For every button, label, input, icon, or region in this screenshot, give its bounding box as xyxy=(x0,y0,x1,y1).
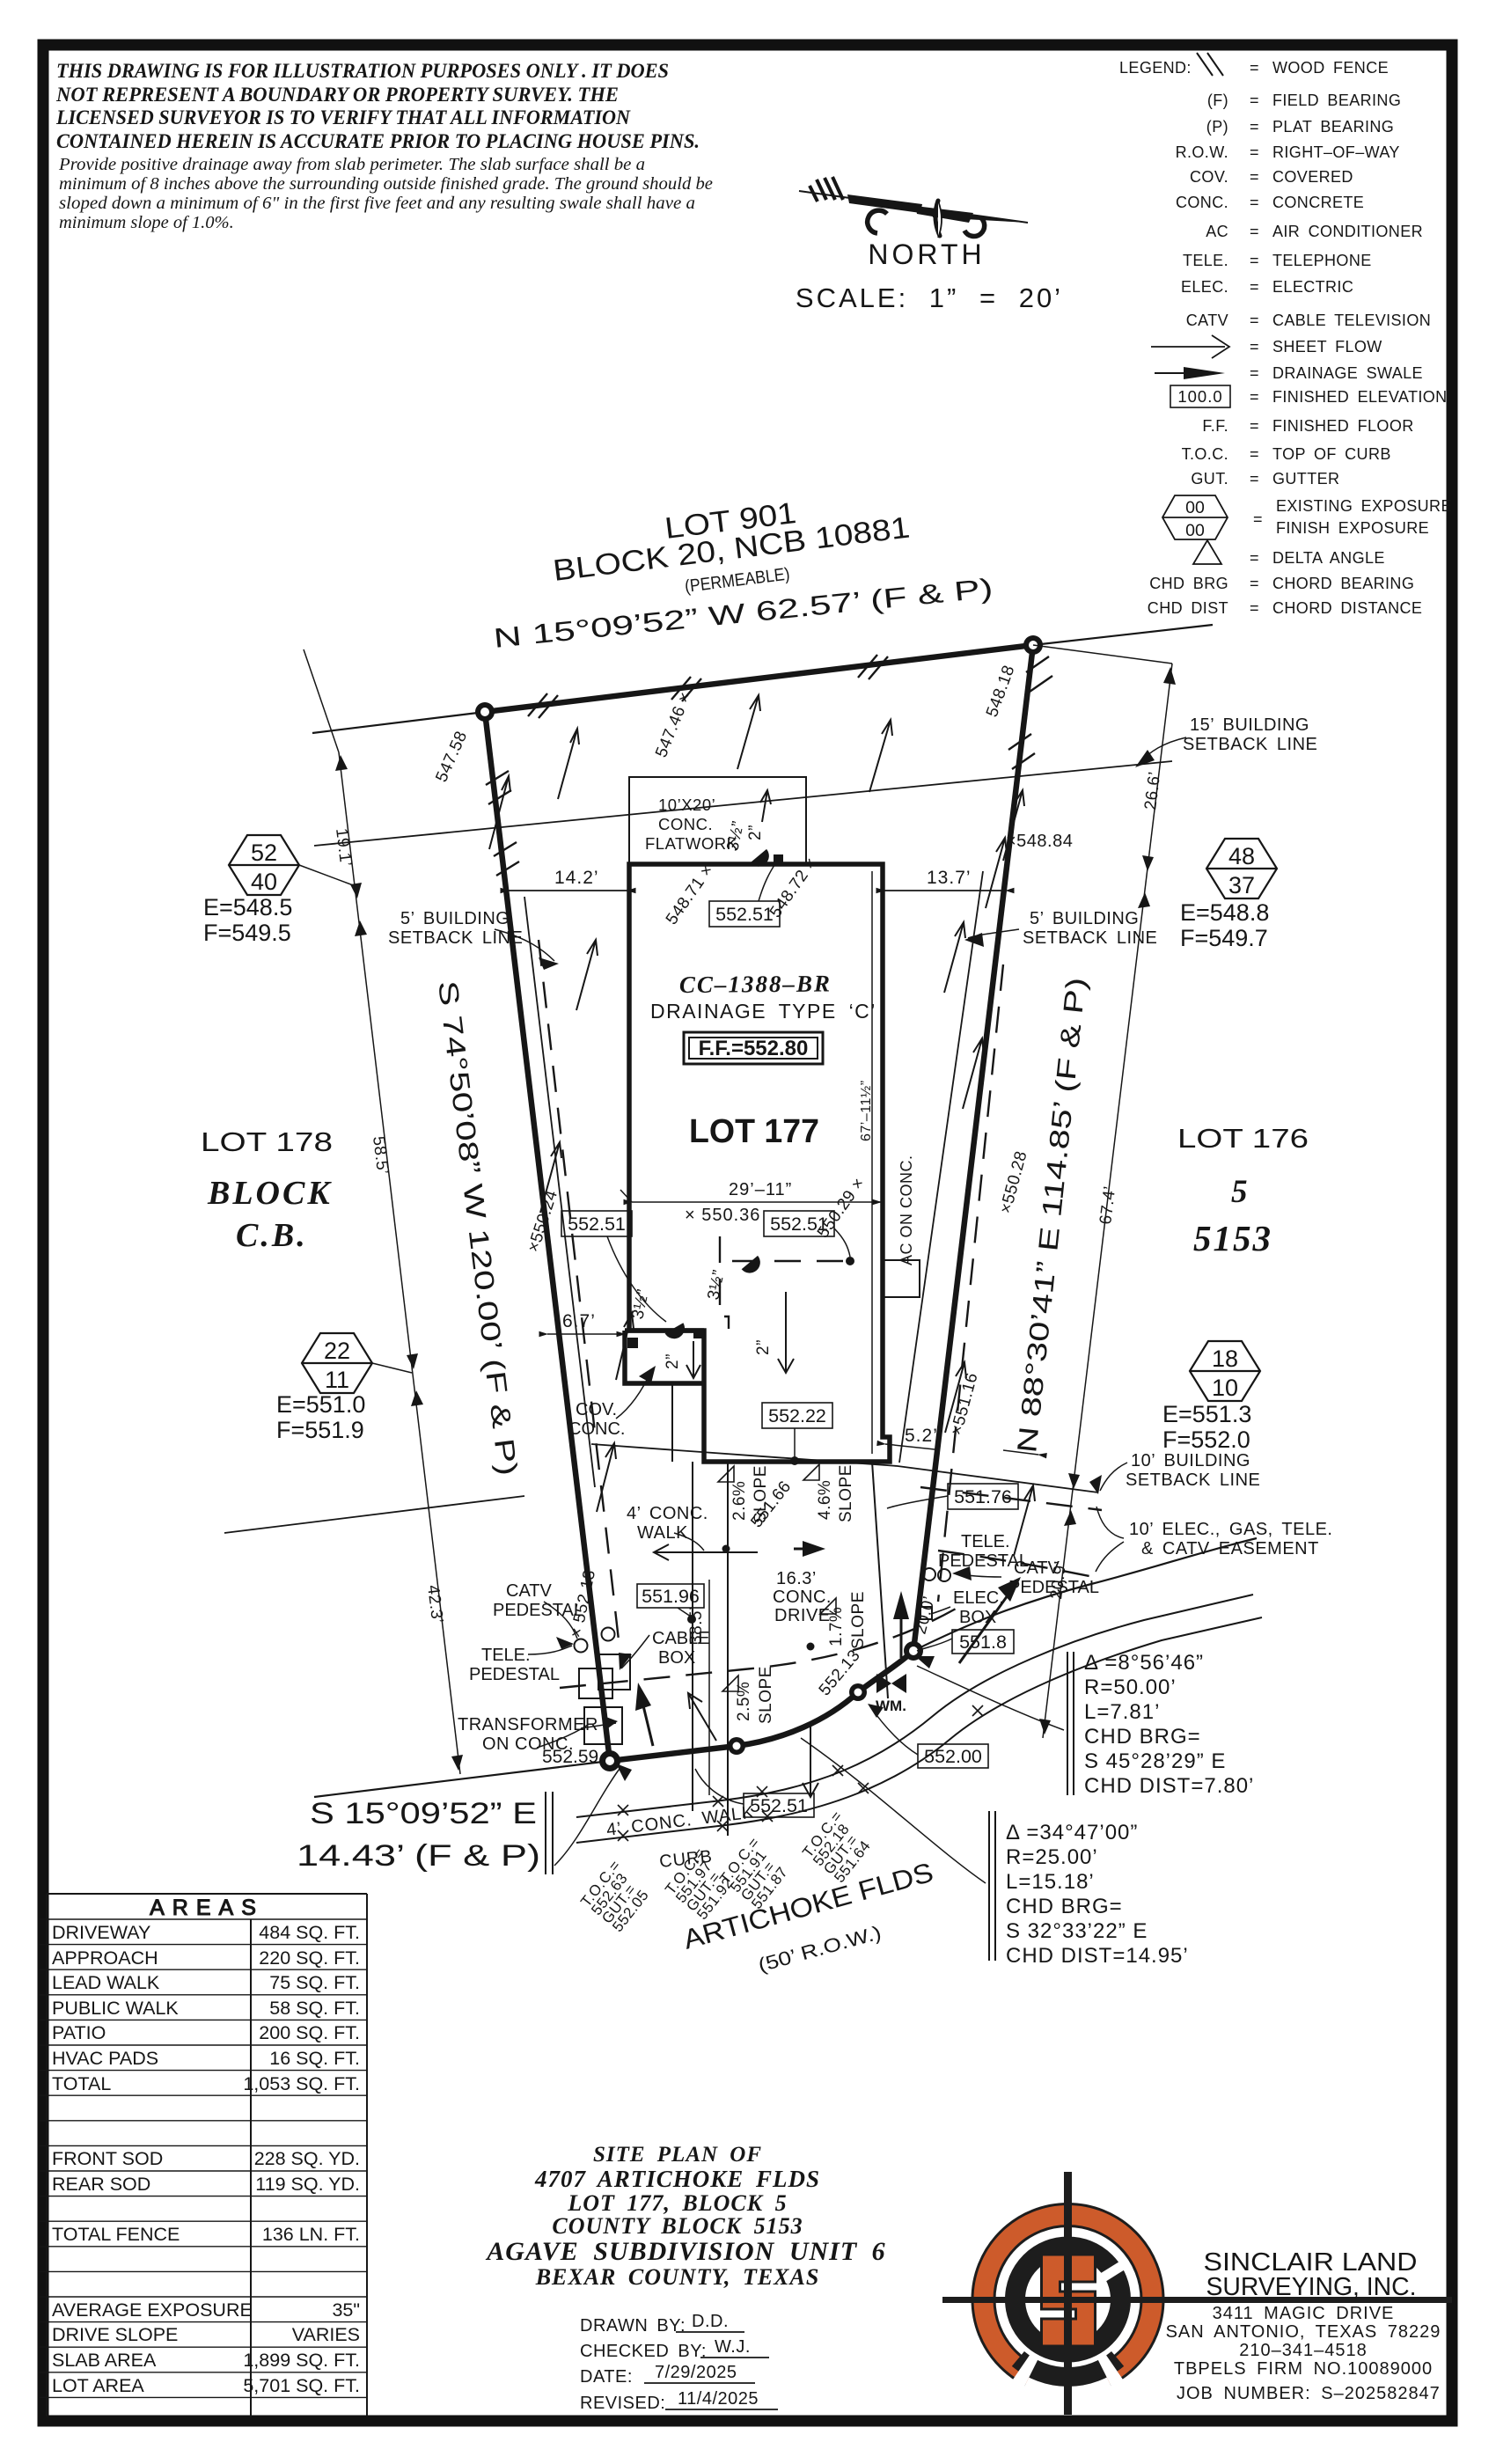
svg-text:BOX: BOX xyxy=(658,1648,695,1668)
svg-text:4707 ARTICHOKE FLDS: 4707 ARTICHOKE FLDS xyxy=(534,2166,820,2192)
svg-text:NOT REPRESENT A BOUNDARY OR PR: NOT REPRESENT A BOUNDARY OR PROPERTY SUR… xyxy=(55,84,619,106)
svg-text:00: 00 xyxy=(1185,498,1205,517)
svg-text:TBPELS FIRM NO.10089000: TBPELS FIRM NO.10089000 xyxy=(1174,2359,1433,2379)
svg-text:SETBACK LINE: SETBACK LINE xyxy=(1023,928,1157,948)
svg-text:2.5%: 2.5% xyxy=(735,1682,753,1721)
svg-text:×548.84: ×548.84 xyxy=(1006,832,1073,851)
svg-text:7/29/2025: 7/29/2025 xyxy=(655,2363,737,2382)
svg-text:SHEET FLOW: SHEET FLOW xyxy=(1272,338,1382,356)
svg-text:SLOPE: SLOPE xyxy=(849,1591,868,1649)
svg-text:=: = xyxy=(1250,338,1259,356)
svg-text:LOT 177: LOT 177 xyxy=(689,1113,819,1150)
svg-text:BLOCK: BLOCK xyxy=(207,1175,333,1212)
svg-text:210–341–4518: 210–341–4518 xyxy=(1239,2341,1367,2360)
svg-text:=: = xyxy=(1250,118,1259,136)
svg-text:FINISHED ELEVATION: FINISHED ELEVATION xyxy=(1272,388,1448,406)
svg-text:38.5’: 38.5’ xyxy=(687,1606,706,1645)
svg-text:CHD BRG=: CHD BRG= xyxy=(1006,1895,1123,1918)
svg-text:× 550.36: × 550.36 xyxy=(685,1206,760,1225)
svg-text:DRIVEWAY: DRIVEWAY xyxy=(52,1922,150,1943)
svg-text:552.51: 552.51 xyxy=(568,1214,626,1235)
svg-text:10: 10 xyxy=(1212,1375,1238,1401)
svg-text:L=7.81’: L=7.81’ xyxy=(1084,1700,1160,1724)
svg-text:29’–11”: 29’–11” xyxy=(729,1180,792,1199)
svg-text:BEXAR COUNTY, TEXAS: BEXAR COUNTY, TEXAS xyxy=(535,2264,820,2290)
svg-text:22: 22 xyxy=(324,1338,350,1364)
svg-text:1,899 SQ. FT.: 1,899 SQ. FT. xyxy=(243,2350,360,2371)
svg-text:F=552.0: F=552.0 xyxy=(1162,1426,1250,1453)
svg-text:EXISTING EXPOSURE: EXISTING EXPOSURE xyxy=(1276,497,1452,515)
svg-text:=: = xyxy=(1250,143,1259,161)
svg-text:228 SQ. YD.: 228 SQ. YD. xyxy=(254,2148,360,2169)
svg-text:C.B.: C.B. xyxy=(236,1217,308,1254)
svg-text:FINISHED FLOOR: FINISHED FLOOR xyxy=(1272,417,1414,435)
svg-text:CHD DIST: CHD DIST xyxy=(1148,599,1228,617)
svg-text:CATV: CATV xyxy=(1186,312,1228,329)
svg-text:(F): (F) xyxy=(1207,92,1228,109)
svg-text:E=551.3: E=551.3 xyxy=(1162,1401,1251,1427)
svg-text:75 SQ. FT.: 75 SQ. FT. xyxy=(269,1972,360,1993)
svg-text:16 SQ. FT.: 16 SQ. FT. xyxy=(269,2048,360,2069)
svg-text:3411 MAGIC DRIVE: 3411 MAGIC DRIVE xyxy=(1213,2304,1395,2323)
svg-text:4.6%: 4.6% xyxy=(816,1480,834,1520)
svg-text:CHD DIST=7.80’: CHD DIST=7.80’ xyxy=(1084,1774,1254,1798)
svg-text:DRAINAGE TYPE ‘C’: DRAINAGE TYPE ‘C’ xyxy=(650,1000,876,1023)
svg-text:THIS DRAWING IS FOR ILLUSTRATI: THIS DRAWING IS FOR ILLUSTRATION PURPOSE… xyxy=(56,60,669,83)
svg-text:CONC.: CONC. xyxy=(1176,194,1228,211)
svg-text:58 SQ. FT.: 58 SQ. FT. xyxy=(269,1998,360,2019)
svg-text:COV.: COV. xyxy=(1190,168,1228,186)
svg-text:LOT 177, BLOCK 5: LOT 177, BLOCK 5 xyxy=(567,2190,787,2216)
svg-text:APPROACH: APPROACH xyxy=(52,1947,158,1969)
svg-text:484 SQ. FT.: 484 SQ. FT. xyxy=(259,1922,360,1943)
svg-text:5153: 5153 xyxy=(1193,1218,1272,1258)
svg-text:DRAINAGE SWALE: DRAINAGE SWALE xyxy=(1272,364,1423,382)
svg-text:CONC.: CONC. xyxy=(658,815,713,833)
svg-text:RIGHT–OF–WAY: RIGHT–OF–WAY xyxy=(1272,143,1400,161)
svg-text:=: = xyxy=(1250,223,1259,240)
svg-text:REAR SOD: REAR SOD xyxy=(52,2174,150,2195)
svg-text:LEGEND:: LEGEND: xyxy=(1119,59,1192,77)
svg-text:JOB NUMBER: S–202582847: JOB NUMBER: S–202582847 xyxy=(1177,2384,1441,2403)
svg-text:GUTTER: GUTTER xyxy=(1272,470,1339,488)
svg-text:CATV: CATV xyxy=(506,1581,553,1601)
svg-text:DATE:: DATE: xyxy=(580,2367,633,2387)
svg-text:ELECTRIC: ELECTRIC xyxy=(1272,278,1353,296)
svg-text:220 SQ. FT.: 220 SQ. FT. xyxy=(259,1947,360,1969)
svg-text:ELEC.: ELEC. xyxy=(953,1588,1004,1608)
svg-text:552.22: 552.22 xyxy=(768,1405,826,1426)
svg-text:PLAT BEARING: PLAT BEARING xyxy=(1272,118,1394,136)
svg-text:5.2’: 5.2’ xyxy=(905,1426,938,1446)
svg-text:551.76: 551.76 xyxy=(954,1486,1012,1507)
svg-text:2.6%: 2.6% xyxy=(730,1481,749,1521)
svg-text:sloped down a minimum of 6" in: sloped down a minimum of 6" in the first… xyxy=(59,194,695,213)
svg-text:15’ BUILDING: 15’ BUILDING xyxy=(1190,715,1309,735)
svg-text:SLOPE: SLOPE xyxy=(757,1666,775,1724)
svg-text:LEAD WALK: LEAD WALK xyxy=(52,1972,160,1993)
svg-text:BOX: BOX xyxy=(959,1608,996,1627)
svg-text:FIELD BEARING: FIELD BEARING xyxy=(1272,92,1401,109)
svg-text:552.00: 552.00 xyxy=(924,1746,982,1767)
svg-text:11/4/2025: 11/4/2025 xyxy=(678,2389,759,2409)
svg-text:VARIES: VARIES xyxy=(292,2324,360,2345)
svg-text:=: = xyxy=(1250,194,1259,211)
svg-text:Provide positive drainage away: Provide positive drainage away from slab… xyxy=(58,155,645,174)
svg-text:AVERAGE EXPOSURE: AVERAGE EXPOSURE xyxy=(52,2299,253,2321)
svg-text:F=551.9: F=551.9 xyxy=(276,1417,364,1443)
svg-text:S 45°28’29” E: S 45°28’29” E xyxy=(1084,1749,1226,1773)
svg-text:1,053 SQ. FT.: 1,053 SQ. FT. xyxy=(243,2073,360,2094)
svg-text:WALK: WALK xyxy=(637,1523,688,1543)
svg-text:=: = xyxy=(1250,312,1259,329)
svg-text:35": 35" xyxy=(332,2299,360,2321)
svg-text:FINISH EXPOSURE: FINISH EXPOSURE xyxy=(1276,519,1429,537)
svg-text:200 SQ. FT.: 200 SQ. FT. xyxy=(259,2022,360,2043)
svg-text:=: = xyxy=(1250,252,1259,269)
svg-text:552.51: 552.51 xyxy=(750,1795,808,1816)
svg-text:5: 5 xyxy=(1231,1174,1248,1210)
svg-text:=: = xyxy=(1253,510,1263,528)
svg-text:Δ =34°47’00”: Δ =34°47’00” xyxy=(1006,1821,1138,1844)
svg-text:100.0: 100.0 xyxy=(1177,387,1222,406)
svg-text:Δ =8°56’46”: Δ =8°56’46” xyxy=(1084,1651,1204,1675)
svg-text:00: 00 xyxy=(1185,521,1205,540)
svg-text:E=548.8: E=548.8 xyxy=(1180,899,1269,926)
svg-text:18: 18 xyxy=(1212,1346,1238,1372)
svg-text:551.8: 551.8 xyxy=(959,1632,1007,1653)
svg-text:AC ON CONC.: AC ON CONC. xyxy=(898,1155,915,1265)
svg-text:minimum slope of 1.0%.: minimum slope of 1.0%. xyxy=(59,213,234,232)
svg-text:551.96: 551.96 xyxy=(642,1586,700,1607)
svg-text:CONTAINED HEREIN IS ACCURATE P: CONTAINED HEREIN IS ACCURATE PRIOR TO PL… xyxy=(56,130,700,153)
svg-text:S 32°33’22” E: S 32°33’22” E xyxy=(1006,1919,1148,1943)
svg-text:W.J.: W.J. xyxy=(715,2337,751,2357)
svg-text:13.7’: 13.7’ xyxy=(927,868,972,888)
svg-text:TOTAL: TOTAL xyxy=(52,2073,111,2094)
svg-text:=: = xyxy=(1250,470,1259,488)
svg-text:SETBACK LINE: SETBACK LINE xyxy=(1126,1470,1260,1490)
svg-text:CHORD DISTANCE: CHORD DISTANCE xyxy=(1272,599,1422,617)
svg-text:WM.: WM. xyxy=(876,1698,906,1714)
svg-text:SCALE: 1” = 20’: SCALE: 1” = 20’ xyxy=(796,282,1063,313)
svg-text:67’–11½”: 67’–11½” xyxy=(859,1080,874,1141)
svg-text:AIR CONDITIONER: AIR CONDITIONER xyxy=(1272,223,1423,240)
svg-text:DRAWN BY:: DRAWN BY: xyxy=(580,2316,686,2336)
svg-text:=: = xyxy=(1250,364,1259,382)
svg-text:=: = xyxy=(1250,92,1259,109)
svg-text:2”: 2” xyxy=(664,1353,682,1369)
svg-text:GUT.: GUT. xyxy=(1191,470,1228,488)
svg-text:FRONT SOD: FRONT SOD xyxy=(52,2148,163,2169)
svg-text:L=15.18’: L=15.18’ xyxy=(1006,1870,1095,1894)
svg-text:52: 52 xyxy=(251,840,277,866)
svg-text:16.3’: 16.3’ xyxy=(776,1569,817,1588)
svg-text:TOTAL FENCE: TOTAL FENCE xyxy=(52,2224,180,2245)
svg-text:R=50.00’: R=50.00’ xyxy=(1084,1676,1177,1699)
svg-text:CC–1388–BR: CC–1388–BR xyxy=(679,970,832,998)
svg-text:552.59: 552.59 xyxy=(542,1747,598,1767)
svg-text:48: 48 xyxy=(1228,843,1255,869)
svg-text:WOOD FENCE: WOOD FENCE xyxy=(1272,59,1389,77)
svg-text:LOT AREA: LOT AREA xyxy=(52,2375,144,2396)
svg-text:LOT 178: LOT 178 xyxy=(201,1126,333,1157)
svg-text:5’ BUILDING: 5’ BUILDING xyxy=(1030,909,1139,928)
svg-text:10’X20’: 10’X20’ xyxy=(658,796,715,814)
svg-text:2”: 2” xyxy=(754,1339,773,1355)
svg-text:PEDESTAL: PEDESTAL xyxy=(469,1665,560,1684)
svg-text:R.O.W.: R.O.W. xyxy=(1176,143,1228,161)
svg-text:NORTH: NORTH xyxy=(868,238,985,270)
svg-text:TOP OF CURB: TOP OF CURB xyxy=(1272,445,1391,463)
svg-text:SLAB AREA: SLAB AREA xyxy=(52,2350,157,2371)
svg-text:(P): (P) xyxy=(1206,118,1228,136)
svg-text:=: = xyxy=(1250,278,1259,296)
svg-text:DELTA ANGLE: DELTA ANGLE xyxy=(1272,549,1385,567)
svg-text:LICENSED SURVEYOR IS TO VERIFY: LICENSED SURVEYOR IS TO VERIFY THAT ALL … xyxy=(55,106,631,129)
svg-text:R=25.00’: R=25.00’ xyxy=(1006,1845,1098,1869)
svg-text:F=549.5: F=549.5 xyxy=(203,920,291,946)
svg-text:F.F.: F.F. xyxy=(1202,417,1228,435)
svg-text:LOT 176: LOT 176 xyxy=(1177,1123,1309,1154)
svg-text:4’ CONC.: 4’ CONC. xyxy=(627,1504,708,1523)
svg-text:PUBLIC WALK: PUBLIC WALK xyxy=(52,1998,179,2019)
svg-text:TELEPHONE: TELEPHONE xyxy=(1272,252,1372,269)
svg-text:11: 11 xyxy=(325,1367,349,1393)
svg-text:AREAS: AREAS xyxy=(150,1896,264,1920)
svg-text:CABLE TELEVISION: CABLE TELEVISION xyxy=(1272,312,1431,329)
svg-text:COV.: COV. xyxy=(576,1400,617,1419)
svg-text:5,701 SQ. FT.: 5,701 SQ. FT. xyxy=(243,2375,360,2396)
svg-text:10’ BUILDING: 10’ BUILDING xyxy=(1131,1451,1250,1470)
svg-text:14.2’: 14.2’ xyxy=(554,868,599,888)
svg-text:CHD BRG: CHD BRG xyxy=(1149,575,1228,592)
svg-text:119 SQ. YD.: 119 SQ. YD. xyxy=(255,2174,360,2195)
svg-text:40: 40 xyxy=(251,869,277,895)
svg-text:SITE PLAN OF: SITE PLAN OF xyxy=(593,2143,762,2167)
svg-text:CONC.: CONC. xyxy=(568,1419,625,1439)
svg-text:=: = xyxy=(1250,549,1259,567)
svg-text:=: = xyxy=(1250,59,1259,77)
svg-text:T.O.C.: T.O.C. xyxy=(1182,445,1228,463)
svg-text:5’ BUILDING: 5’ BUILDING xyxy=(400,909,510,928)
svg-text:F=549.7: F=549.7 xyxy=(1180,925,1268,951)
svg-text:DRIVE: DRIVE xyxy=(774,1606,831,1625)
svg-text:SURVEYING, INC.: SURVEYING, INC. xyxy=(1206,2273,1417,2301)
svg-text:CHORD BEARING: CHORD BEARING xyxy=(1272,575,1414,592)
svg-text:PEDESTAL: PEDESTAL xyxy=(493,1601,583,1620)
svg-text:TELE.: TELE. xyxy=(1183,252,1228,269)
svg-text:AC: AC xyxy=(1206,223,1228,240)
svg-text:AGAVE SUBDIVISION UNIT 6: AGAVE SUBDIVISION UNIT 6 xyxy=(485,2237,885,2266)
svg-text:=: = xyxy=(1250,417,1259,435)
svg-text:=: = xyxy=(1250,388,1259,406)
svg-text:37: 37 xyxy=(1228,872,1255,898)
svg-text:ELEC.: ELEC. xyxy=(1181,278,1228,296)
svg-text:10’ ELEC., GAS, TELE.: 10’ ELEC., GAS, TELE. xyxy=(1129,1520,1332,1539)
svg-text:COUNTY BLOCK 5153: COUNTY BLOCK 5153 xyxy=(552,2213,803,2239)
svg-text:=: = xyxy=(1250,445,1259,463)
svg-text:2”: 2” xyxy=(746,825,765,840)
svg-text:552.51: 552.51 xyxy=(715,904,774,925)
svg-text:CONC.: CONC. xyxy=(773,1588,832,1607)
svg-text:COVERED: COVERED xyxy=(1272,168,1353,186)
svg-text:& CATV EASEMENT: & CATV EASEMENT xyxy=(1141,1539,1319,1558)
svg-text:E=551.0: E=551.0 xyxy=(276,1391,365,1418)
svg-text:S 15°09’52” E: S 15°09’52” E xyxy=(310,1797,537,1830)
svg-text:SLOPE: SLOPE xyxy=(752,1465,770,1523)
svg-text:=: = xyxy=(1250,168,1259,186)
svg-text:CHD DIST=14.95’: CHD DIST=14.95’ xyxy=(1006,1944,1189,1968)
svg-text:TELE.: TELE. xyxy=(961,1532,1010,1551)
svg-text:CHD BRG=: CHD BRG= xyxy=(1084,1725,1201,1749)
svg-text:REVISED:: REVISED: xyxy=(580,2394,665,2413)
svg-text:D.D.: D.D. xyxy=(692,2312,729,2331)
svg-text:SETBACK LINE: SETBACK LINE xyxy=(1183,735,1317,754)
svg-text:14.43’ (F & P): 14.43’ (F & P) xyxy=(297,1839,540,1873)
svg-text:SLOPE: SLOPE xyxy=(837,1464,855,1522)
svg-text:SAN ANTONIO, TEXAS 78229: SAN ANTONIO, TEXAS 78229 xyxy=(1166,2322,1441,2342)
svg-text:DRIVE SLOPE: DRIVE SLOPE xyxy=(52,2324,178,2345)
svg-text:F.F.=552.80: F.F.=552.80 xyxy=(699,1037,809,1060)
svg-text:TELE.: TELE. xyxy=(481,1646,531,1665)
svg-text:CHECKED BY:: CHECKED BY: xyxy=(580,2342,707,2361)
svg-text:6.7’: 6.7’ xyxy=(562,1311,596,1331)
svg-text:PATIO: PATIO xyxy=(52,2022,106,2043)
svg-text:minimum of 8 inches above the: minimum of 8 inches above the surroundin… xyxy=(59,174,713,194)
svg-text:=: = xyxy=(1250,599,1259,617)
svg-text:=: = xyxy=(1250,575,1259,592)
svg-text:CONCRETE: CONCRETE xyxy=(1272,194,1364,211)
svg-text:136 LN. FT.: 136 LN. FT. xyxy=(262,2224,360,2245)
svg-text:HVAC PADS: HVAC PADS xyxy=(52,2048,158,2069)
svg-text:E=548.5: E=548.5 xyxy=(203,894,292,920)
